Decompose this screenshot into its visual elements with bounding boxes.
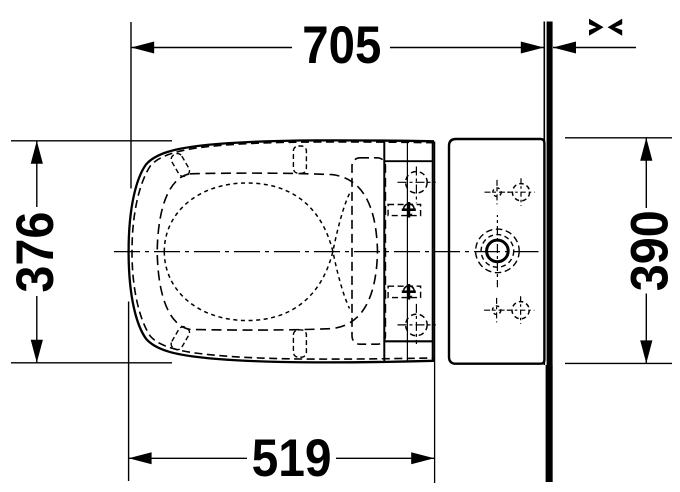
svg-text:376: 376 — [6, 212, 65, 293]
svg-text:519: 519 — [252, 429, 332, 488]
svg-text:705: 705 — [302, 16, 381, 75]
svg-text:390: 390 — [621, 210, 680, 291]
